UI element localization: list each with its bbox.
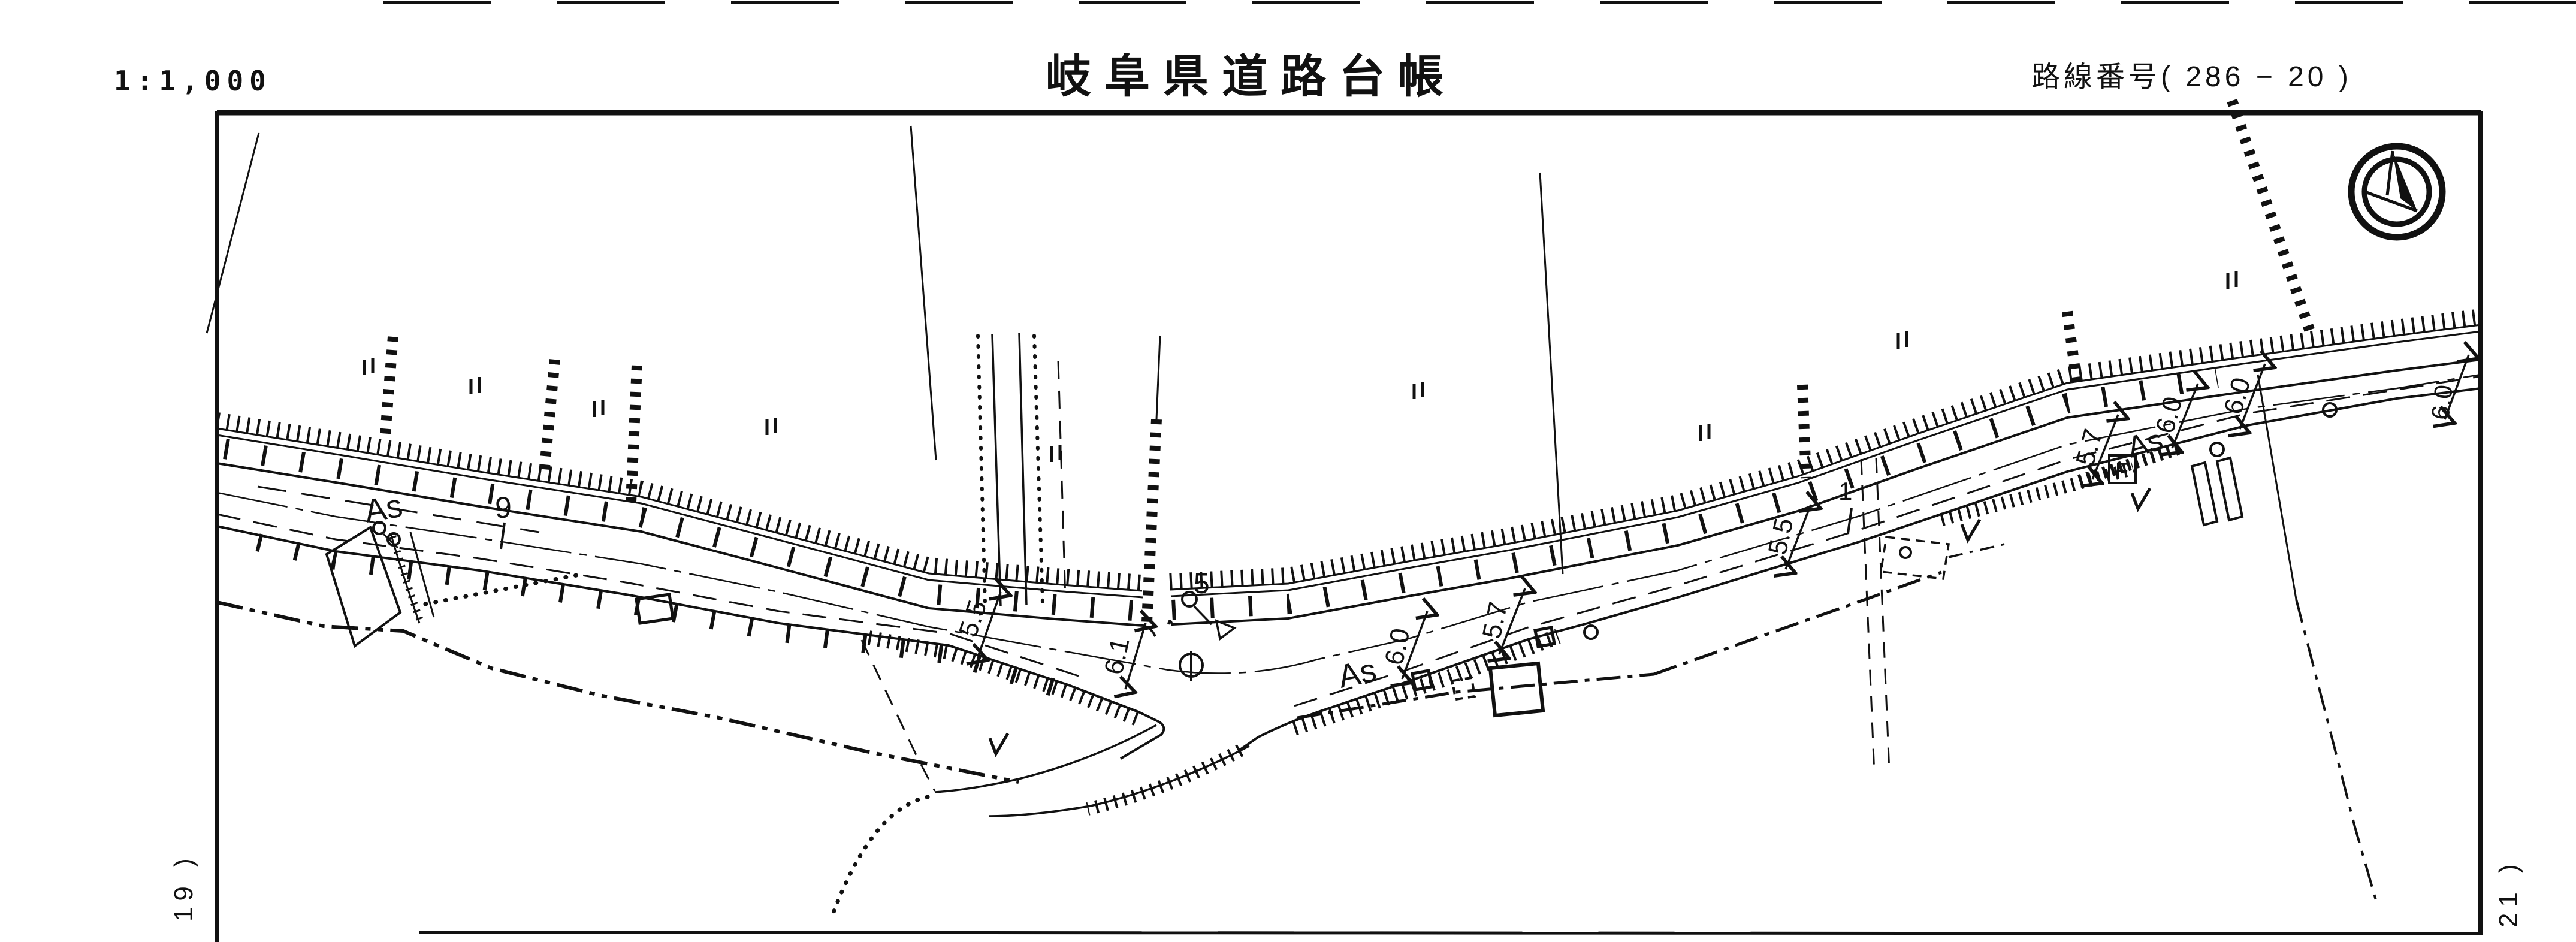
pavement-label: As [362,488,405,530]
station-symbols [373,403,2336,690]
station-label: 9 [495,491,512,524]
fork-street-lower [833,640,1249,914]
width-label: 6.0 [2218,375,2256,418]
road-ledger-sheet: 1:1,000 岐阜県道路台帳 路線番号( 286 − 20 ) − 19 ) … [0,0,2576,942]
vegetation-marks [990,488,2150,754]
parcel-boundaries-upper [207,101,2311,622]
facility-label: F [2115,458,2128,483]
width-label: 6.0 [1379,626,1416,668]
north-arrow-icon [2351,146,2442,237]
pavement-label: As [1335,652,1379,695]
road-upper-band-right [1168,316,2481,624]
road-centerline [217,375,2481,674]
road-upper-band-left [217,420,1155,636]
map-frame [217,111,2481,942]
width-label: 6.0 [2426,383,2458,421]
station-label: 1 [1838,477,1852,505]
dashed-lane-crossing [1861,458,1889,774]
road-plan-drawing: As 9 5.5 6.1 5 As 6.0 5.7 5.5 1 5.7 As 6… [0,0,2576,942]
station-label: 5 [1194,568,1210,600]
width-label: 6.1 [1099,635,1136,677]
